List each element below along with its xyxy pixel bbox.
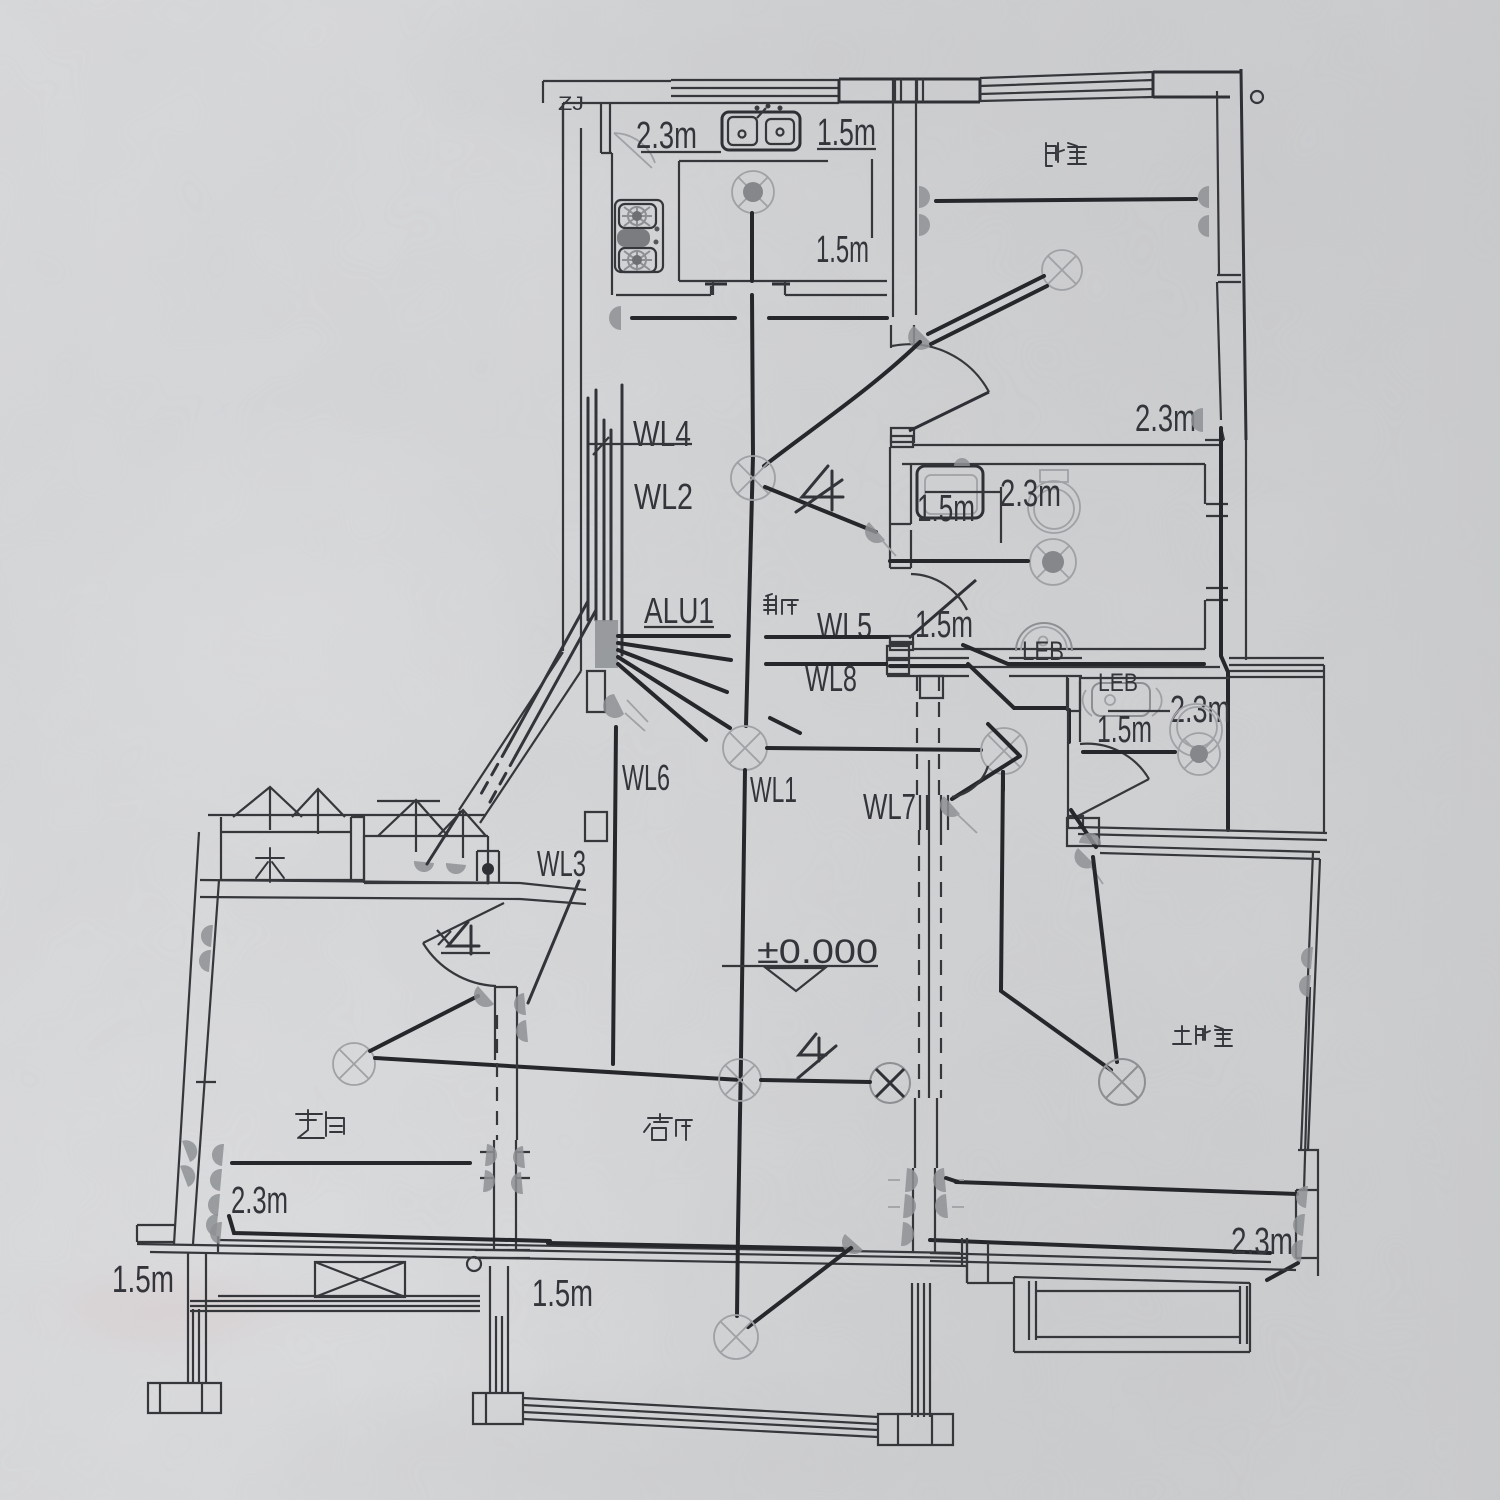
svg-text:1.5m: 1.5m <box>1097 709 1152 751</box>
svg-text:WL5: WL5 <box>817 605 872 646</box>
svg-text:LEB: LEB <box>1022 636 1064 666</box>
svg-text:2.3m: 2.3m <box>1135 398 1196 440</box>
svg-text:ALU1: ALU1 <box>644 590 714 631</box>
svg-text:2.3m: 2.3m <box>1231 1221 1293 1263</box>
svg-text:2.3m: 2.3m <box>231 1180 288 1222</box>
svg-text:2.3m: 2.3m <box>636 115 697 157</box>
svg-text:WL8: WL8 <box>805 658 857 699</box>
svg-text:WL2: WL2 <box>634 476 693 517</box>
svg-text:1.5m: 1.5m <box>532 1273 593 1315</box>
svg-text:1.5m: 1.5m <box>817 112 876 154</box>
svg-text:WL6: WL6 <box>622 757 670 798</box>
svg-text:1.5m: 1.5m <box>917 488 975 530</box>
svg-text:1.5m: 1.5m <box>112 1259 174 1301</box>
svg-text:1.5m: 1.5m <box>915 604 973 646</box>
svg-text:WL7: WL7 <box>863 786 916 827</box>
svg-text:LEB: LEB <box>1098 669 1138 697</box>
svg-text:1.5m: 1.5m <box>816 229 869 271</box>
svg-text:WL4: WL4 <box>633 413 691 454</box>
svg-text:WL1: WL1 <box>750 769 797 810</box>
svg-text:WL3: WL3 <box>537 843 586 884</box>
svg-text:2.3m: 2.3m <box>1000 473 1061 515</box>
